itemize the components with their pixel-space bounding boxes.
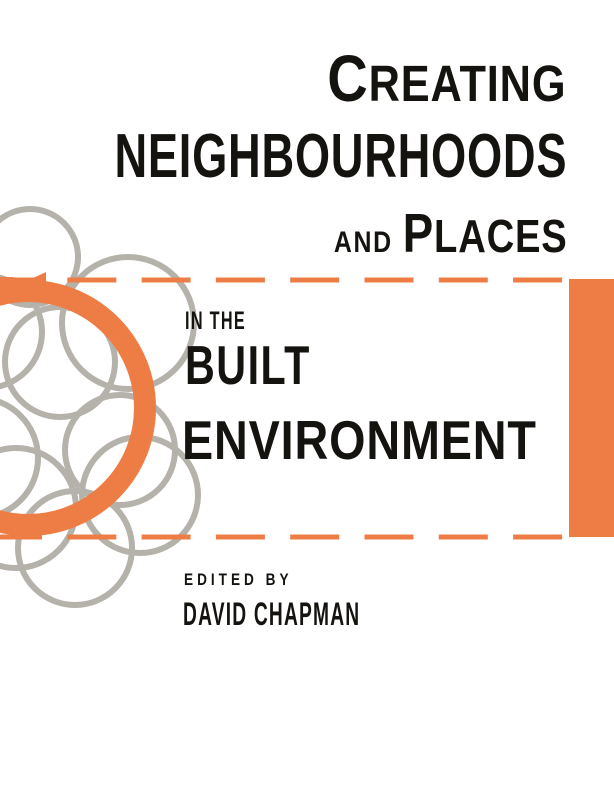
- right-orange-bar: [569, 279, 614, 537]
- arrow-tail-block: [0, 277, 13, 293]
- title-line-creating: CREATING: [327, 45, 566, 117]
- overlapping-circles-graphic: [0, 209, 198, 605]
- cover-art: [0, 0, 614, 800]
- book-cover: CREATING NEIGHBOURHOODS ANDPLACES IN THE…: [0, 0, 614, 800]
- edited-by-label: EDITED BY: [184, 571, 293, 588]
- title-word-and: AND: [334, 226, 393, 259]
- title-word-places: PLACES: [403, 206, 568, 264]
- title-line-environment: ENVIRONMENT: [182, 413, 537, 468]
- editor-name: DAVID CHAPMAN: [183, 598, 360, 630]
- title-line-built: BUILT: [185, 338, 311, 393]
- title-line-in-the: IN THE: [185, 309, 246, 334]
- title-line-neighbourhoods: NEIGHBOURHOODS: [114, 126, 567, 188]
- title-line-and-places: ANDPLACES: [334, 206, 568, 270]
- gray-circle: [0, 398, 38, 518]
